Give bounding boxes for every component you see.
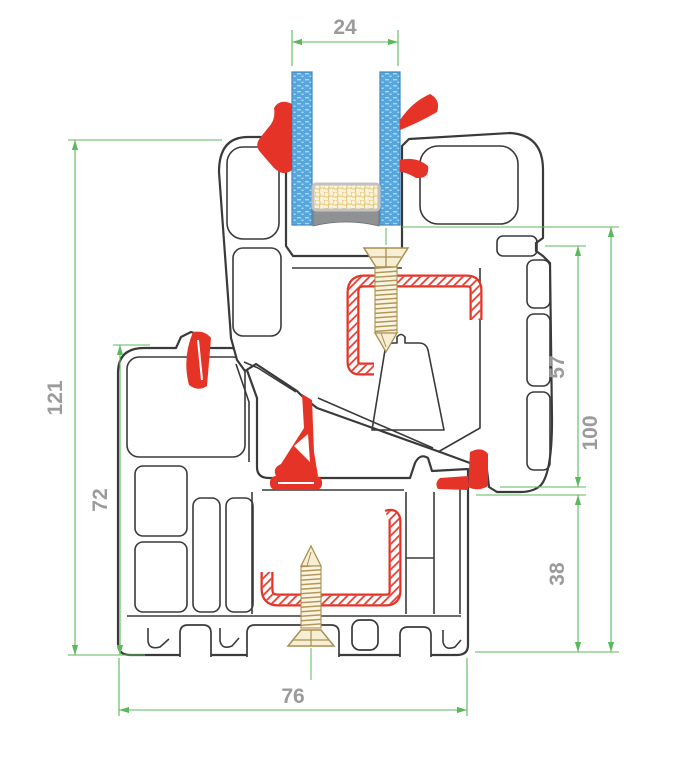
spacer-bar xyxy=(313,184,379,210)
cross-section-canvas: 24 121 72 57 100 38 76 xyxy=(0,0,681,762)
dim-label-100: 100 xyxy=(579,415,602,450)
screw-bottom-shank xyxy=(301,566,321,628)
dim-label-24: 24 xyxy=(333,16,357,39)
dim-label-38: 38 xyxy=(546,562,569,586)
glass-pane-right xyxy=(380,72,400,225)
right-step-gasket-tail xyxy=(436,476,468,490)
dim-label-76: 76 xyxy=(281,685,304,708)
dim-label-121: 121 xyxy=(44,380,67,415)
dim-label-72: 72 xyxy=(89,488,112,511)
glass-pane-left xyxy=(292,72,312,225)
dim-label-57: 57 xyxy=(546,355,569,378)
right-step-gasket xyxy=(468,449,488,489)
window-profile-drawing: 24 121 72 57 100 38 76 xyxy=(0,0,681,762)
screw-top-shank xyxy=(375,267,397,333)
